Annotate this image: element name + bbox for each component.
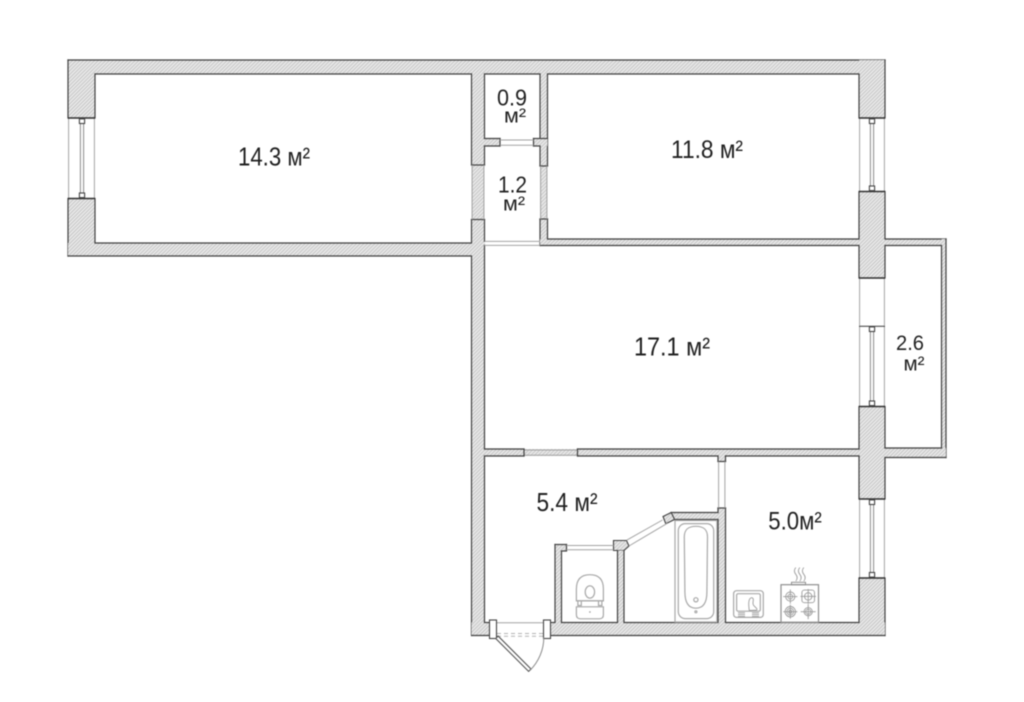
svg-text:м²: м² [504,105,526,128]
svg-text:11.8 м²: 11.8 м² [671,136,743,164]
svg-text:17.1 м²: 17.1 м² [634,332,710,362]
svg-text:2.6: 2.6 [896,331,924,355]
svg-text:м²: м² [503,193,525,216]
svg-text:м²: м² [904,354,925,376]
svg-text:14.3 м²: 14.3 м² [238,142,310,172]
svg-text:5.0м²: 5.0м² [768,508,822,536]
svg-text:5.4 м²: 5.4 м² [537,487,598,517]
